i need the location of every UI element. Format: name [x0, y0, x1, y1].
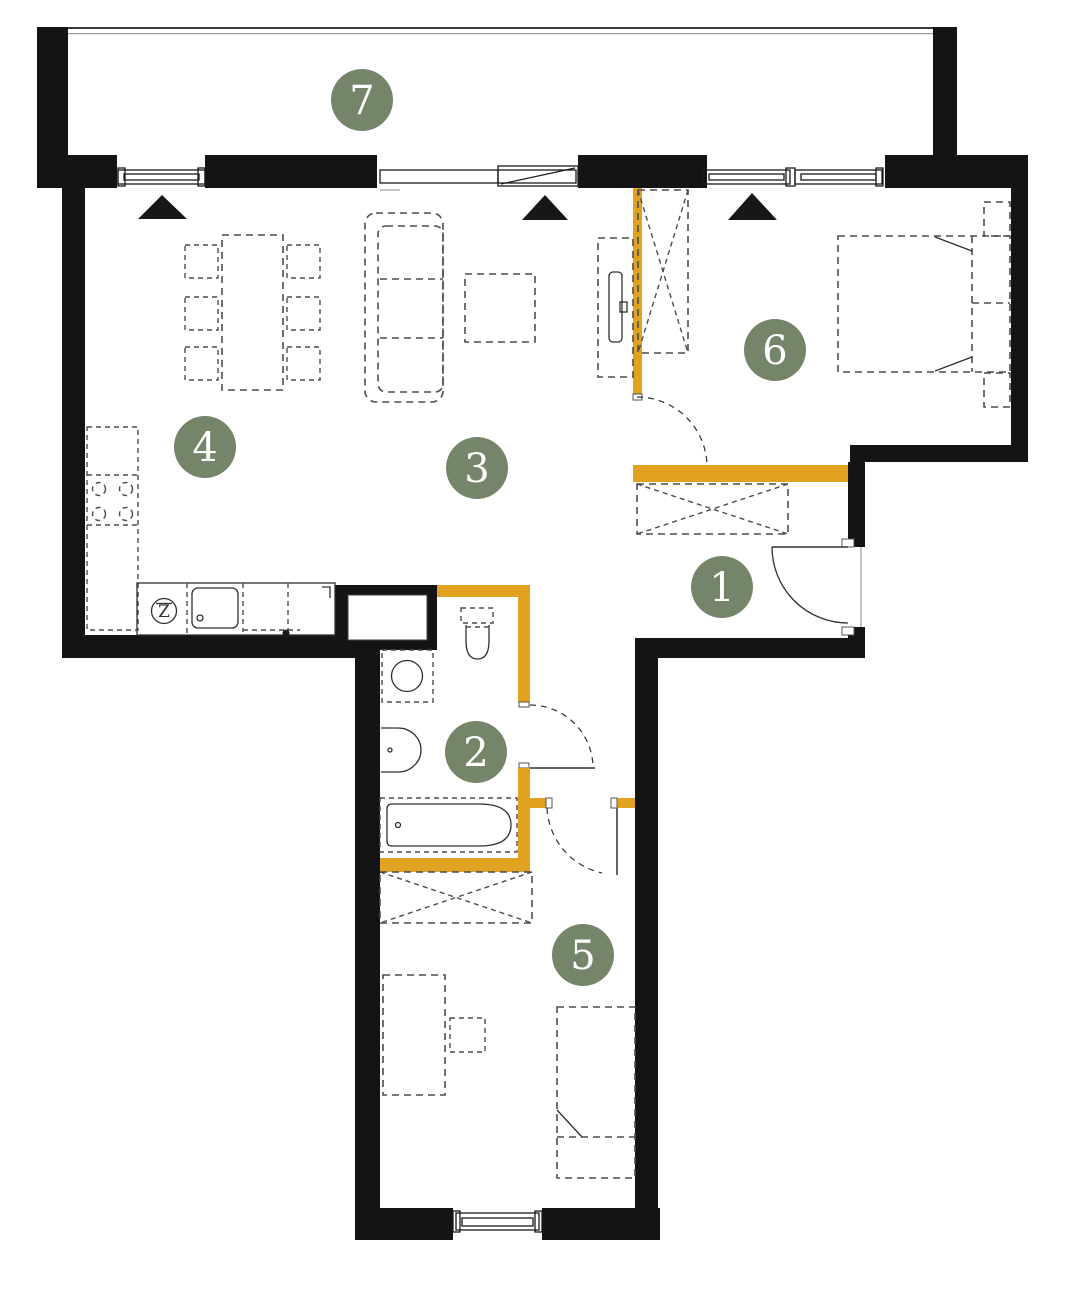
exterior-walls	[62, 155, 1028, 1240]
wardrobe-hallway	[637, 484, 788, 534]
washing-machine	[382, 650, 433, 702]
toilet	[461, 608, 493, 659]
accent-wall-bathroom-bottom	[380, 858, 530, 872]
dining-table	[222, 235, 283, 390]
kitchen-sink-basin	[192, 588, 238, 628]
svg-text:4: 4	[192, 425, 217, 471]
accent-wall-bathroom-right-upper	[518, 597, 530, 702]
vent-triangle-icon	[138, 195, 187, 219]
room-badge-1: 1	[691, 556, 753, 618]
bathroom-door	[530, 705, 595, 768]
bedroom6-furniture	[638, 190, 1010, 407]
duct-shaft-interior	[348, 595, 427, 640]
vent-triangle-icon	[728, 193, 777, 220]
svg-text:6: 6	[762, 328, 787, 374]
sofa	[365, 213, 443, 402]
left-wall	[62, 155, 85, 658]
svg-text:5: 5	[570, 933, 595, 979]
top-wall-segment-2	[205, 155, 377, 188]
room-badge-5: 5	[552, 924, 614, 986]
accent-door-jamb-left	[530, 798, 546, 808]
chair	[287, 297, 320, 330]
window-kitchen	[118, 168, 205, 186]
floor-plan: Z	[0, 0, 1072, 1296]
counter-dot	[283, 630, 290, 637]
balcony-edge-line	[68, 27, 933, 29]
vent-triangles	[138, 193, 777, 220]
svg-text:2: 2	[463, 730, 488, 776]
svg-text:3: 3	[464, 446, 489, 492]
cooktop-burner	[93, 508, 106, 521]
bedroom-door-swing	[637, 397, 707, 465]
accent-wall-hallway	[633, 465, 848, 482]
chair	[287, 245, 320, 278]
single-bed	[557, 1007, 635, 1178]
sink-symbol-letter: Z	[158, 602, 170, 622]
kitchen-bottom-wall	[62, 635, 380, 658]
svg-text:1: 1	[709, 565, 734, 611]
coffee-table	[465, 274, 535, 342]
room-badge-6: 6	[744, 319, 806, 381]
accent-wall-bathroom-top	[437, 585, 530, 597]
living-furniture	[365, 213, 633, 402]
cooktop-burner	[93, 483, 106, 496]
nightstand	[984, 373, 1010, 407]
window-room5	[453, 1211, 542, 1232]
chair	[185, 245, 218, 278]
window-living-balcony-door	[380, 166, 578, 190]
wall-end-cap	[546, 798, 552, 808]
tv-mount	[620, 302, 627, 312]
room-badge-4: 4	[174, 416, 236, 478]
accent-wall-bathroom-right-lower	[518, 768, 530, 858]
wall-end-cap	[519, 763, 529, 768]
tv-unit	[598, 238, 633, 377]
bathroom-left-wall	[355, 640, 380, 1240]
room5-furniture	[380, 872, 635, 1178]
wall-end-cap	[519, 702, 529, 707]
nightstand	[984, 202, 1010, 236]
cooktop-burner	[120, 508, 133, 521]
balcony-right-wall	[933, 27, 957, 155]
room-badge-7: 7	[331, 69, 393, 131]
balcony-edge-line-inner	[68, 33, 933, 34]
bedroom-bottom-wall	[850, 445, 1011, 462]
bathtub-drain	[396, 823, 401, 828]
kitchen-counter: Z	[137, 583, 335, 637]
chair	[287, 347, 320, 380]
counter-corner-mark	[322, 587, 330, 598]
floor-plan-drawing: Z	[0, 0, 1072, 1296]
sink-symbol: Z	[152, 599, 177, 624]
desk	[383, 975, 445, 1095]
chair	[185, 297, 218, 330]
right-wall	[1011, 188, 1028, 462]
room5-door	[547, 808, 617, 875]
top-wall-segment-3	[578, 155, 707, 188]
dining-set	[185, 235, 320, 390]
room-badge-3: 3	[446, 437, 508, 499]
room-badges: 1 2 3 4 5 6 7	[174, 69, 806, 986]
bottom-wall-left	[355, 1208, 453, 1240]
bathroom-sink	[381, 728, 421, 772]
room-badge-2: 2	[445, 721, 507, 783]
corridor-right-wall	[635, 658, 658, 1240]
hallway-furniture	[637, 484, 788, 534]
entry-wall-above-door	[848, 462, 865, 547]
kitchen-tall-units	[87, 427, 138, 630]
vent-triangle-icon	[522, 195, 568, 220]
chair	[185, 347, 218, 380]
wardrobe-bedroom	[638, 190, 688, 353]
bottom-wall-right	[542, 1208, 660, 1240]
top-wall-segment-4	[885, 155, 1028, 188]
entry-door	[772, 539, 861, 635]
wall-end-cap	[611, 798, 617, 808]
bathtub	[380, 798, 517, 852]
svg-text:7: 7	[349, 78, 374, 124]
accent-door-jamb-right	[617, 798, 635, 808]
wardrobe-room5	[380, 872, 532, 923]
double-bed	[838, 202, 1010, 407]
sink-drain	[197, 615, 203, 621]
desk-chair	[450, 1018, 485, 1052]
hallway-bottom-wall	[635, 638, 865, 658]
window-bedroom	[703, 168, 883, 186]
cooktop-burner	[120, 483, 133, 496]
balcony	[37, 27, 957, 188]
